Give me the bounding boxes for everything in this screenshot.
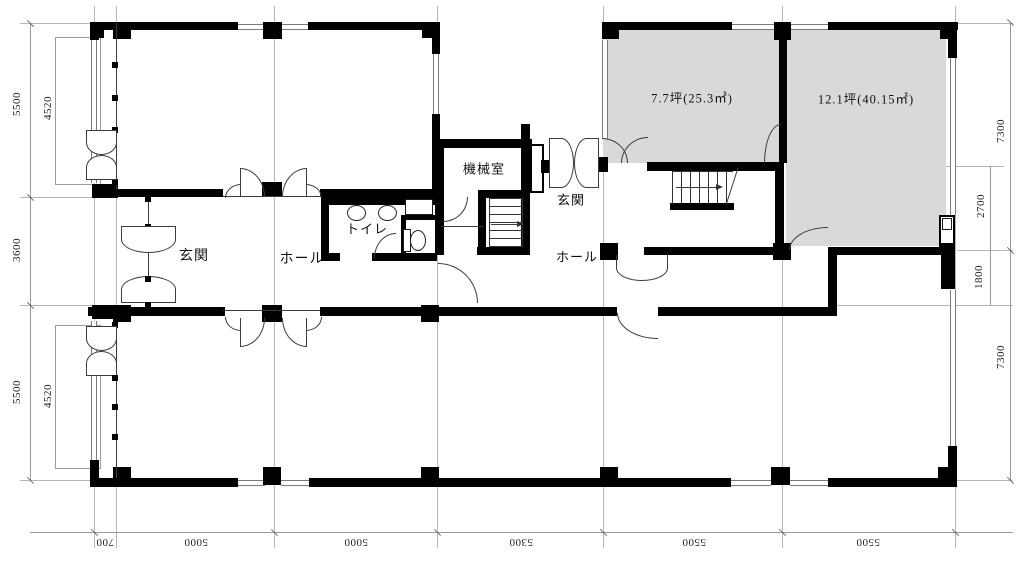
- window: [950, 58, 956, 215]
- wall: [647, 162, 783, 171]
- dim-bottom-5500-b: 5500: [856, 536, 880, 548]
- door-swing: [240, 168, 265, 197]
- leased-room-b-fill: [786, 29, 946, 246]
- door-hinge: [145, 276, 151, 282]
- stair-direction-line: [676, 187, 718, 188]
- dimension-line: [30, 23, 31, 480]
- door-swing: [443, 197, 468, 222]
- column: [421, 305, 439, 322]
- dim-bottom-5500-a: 5500: [682, 536, 706, 548]
- wall: [828, 247, 837, 316]
- door-hinge: [145, 196, 151, 202]
- dim-right-2700: 2700: [975, 194, 987, 218]
- wall: [401, 215, 437, 220]
- wall: [88, 307, 225, 316]
- double-door-leaf: [549, 138, 574, 188]
- wall: [432, 22, 440, 54]
- wall: [92, 189, 223, 197]
- wall: [828, 247, 943, 255]
- wall: [308, 22, 440, 30]
- dimension-line: [30, 532, 1013, 533]
- door-sill: [223, 310, 322, 311]
- dim-left-5500-bottom: 5500: [11, 380, 23, 404]
- column: [600, 467, 618, 485]
- wall: [90, 22, 99, 40]
- door-swing: [225, 184, 241, 198]
- column: [771, 467, 790, 485]
- stair-direction-line: [491, 224, 519, 225]
- floor-plan-canvas: 機械室 トイレ 玄関 ホール 玄関 ホール 7.7坪(25.3㎡) 12.1坪(…: [0, 0, 1024, 561]
- double-door-leaf: [86, 155, 117, 180]
- wall: [644, 247, 775, 255]
- door-swing: [240, 318, 265, 347]
- door-hinge: [112, 375, 118, 381]
- window: [238, 480, 265, 486]
- door-hinge: [112, 62, 118, 68]
- extension-line: [957, 250, 1013, 251]
- door-hinge: [112, 434, 118, 440]
- window: [281, 480, 309, 486]
- wall: [481, 190, 530, 198]
- wall: [320, 189, 440, 197]
- wall: [670, 203, 734, 210]
- double-door-leaf: [121, 226, 176, 253]
- door-swing: [616, 255, 668, 281]
- column: [262, 182, 282, 197]
- extension-line: [837, 305, 1013, 306]
- dim-left-3600: 3600: [11, 238, 23, 262]
- grid-line-horizontal: [957, 480, 1013, 481]
- wall: [948, 22, 957, 58]
- wall: [478, 190, 486, 255]
- window: [281, 24, 308, 30]
- dim-left-4520-top: 4520: [42, 96, 54, 120]
- double-door-leaf: [86, 130, 117, 155]
- room-label-entrance-left: 玄関: [179, 245, 209, 265]
- room-label-toilet: トイレ: [346, 219, 388, 238]
- column: [113, 305, 131, 322]
- column: [938, 467, 957, 485]
- counter: [405, 199, 433, 215]
- wall: [309, 478, 731, 487]
- door-swing: [617, 313, 658, 339]
- wall: [320, 307, 617, 316]
- double-door-leaf: [86, 351, 117, 376]
- room-label-entrance-right: 玄関: [557, 190, 585, 209]
- window: [790, 24, 828, 30]
- double-door-leaf: [86, 326, 117, 351]
- dim-bottom-700: 700: [96, 536, 114, 548]
- dim-left-4520-bottom: 4520: [42, 384, 54, 408]
- door-swing: [225, 317, 241, 331]
- room-label-machine-room: 機械室: [463, 159, 505, 178]
- wall: [90, 460, 99, 487]
- door-swing: [282, 168, 307, 197]
- stair-direction-arrow: [716, 184, 723, 190]
- dimension-line: [990, 166, 991, 305]
- column: [262, 305, 282, 322]
- door-swing: [282, 318, 307, 347]
- service-shaft-inner: [942, 218, 952, 230]
- area-label-unit-a: 7.7坪(25.3㎡): [651, 88, 733, 107]
- landing-edge: [441, 226, 483, 227]
- window: [732, 24, 775, 30]
- window: [433, 54, 439, 114]
- door-swing: [438, 263, 478, 303]
- door-hinge: [112, 404, 118, 410]
- door-jamb: [541, 160, 549, 173]
- door-swing: [306, 317, 322, 331]
- window: [790, 480, 828, 486]
- column: [263, 22, 282, 39]
- door-hinge: [112, 95, 118, 101]
- column: [602, 22, 619, 39]
- dim-right-7300-bottom: 7300: [995, 345, 1007, 369]
- dim-right-1800: 1800: [973, 265, 985, 289]
- double-door-leaf: [574, 138, 599, 188]
- dim-left-5500-top: 5500: [11, 92, 23, 116]
- column: [421, 467, 439, 485]
- wall-pier: [941, 243, 955, 289]
- window: [238, 24, 266, 30]
- window: [602, 40, 608, 139]
- area-label-unit-b: 12.1坪(40.15㎡): [818, 89, 914, 108]
- dim-bottom-5300: 5300: [509, 536, 533, 548]
- window: [731, 480, 771, 486]
- window: [950, 290, 956, 446]
- room-label-hall-left: ホール: [280, 248, 325, 268]
- wall: [658, 307, 832, 316]
- column: [263, 467, 281, 485]
- dim-bottom-5000-b: 5000: [344, 536, 368, 548]
- dim-right-7300-top: 7300: [995, 119, 1007, 143]
- wall: [437, 139, 532, 148]
- stair-direction-arrow: [517, 221, 524, 227]
- wall: [617, 22, 732, 30]
- grid-line-horizontal: [957, 23, 1013, 24]
- dim-bottom-5000-a: 5000: [184, 536, 208, 548]
- wall: [828, 22, 958, 30]
- wall: [477, 247, 525, 255]
- door-swing: [306, 184, 322, 198]
- room-label-hall-right: ホール: [556, 247, 598, 266]
- wall: [775, 162, 784, 250]
- toilet-bowl: [410, 230, 426, 251]
